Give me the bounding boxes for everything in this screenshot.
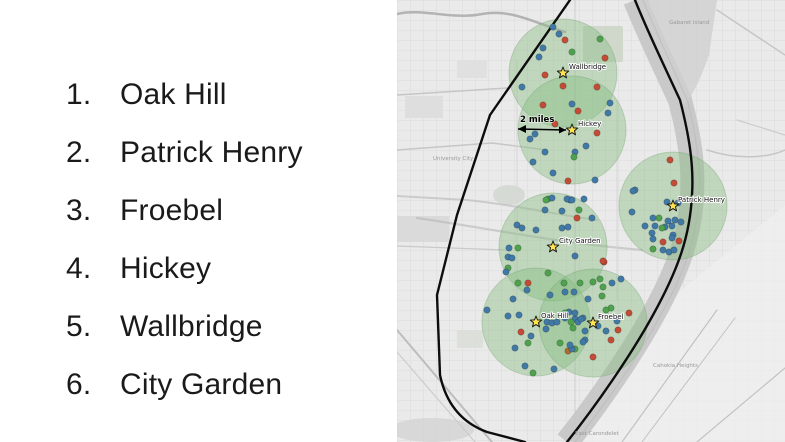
school-list: 1.Oak Hill2.Patrick Henry3.Froebel4.Hick… [66, 78, 303, 426]
data-point-dot [540, 45, 546, 51]
data-point-dot [532, 131, 538, 137]
school-name: Froebel [120, 194, 223, 228]
data-point-dot [594, 130, 600, 136]
data-point-dot [576, 207, 582, 213]
data-point-dot [607, 100, 613, 106]
data-point-dot [650, 215, 656, 221]
data-point-dot [557, 340, 563, 346]
data-point-dot [562, 289, 568, 295]
data-point-dot [594, 84, 600, 90]
data-point-dot [578, 316, 584, 322]
data-point-dot [660, 247, 666, 253]
school-list-item-1: 1.Oak Hill [66, 78, 303, 109]
data-point-dot [505, 313, 511, 319]
data-point-dot [570, 325, 576, 331]
data-point-dot [660, 239, 666, 245]
data-point-dot [650, 246, 656, 252]
data-point-dot [567, 342, 573, 348]
data-point-dot [530, 159, 536, 165]
data-point-dot [528, 333, 534, 339]
basemap-label-cahokia-heights: Cahokia Heights [653, 363, 698, 369]
map: WallbridgeHickeyPatrick HenryCity Garden… [397, 0, 785, 442]
data-point-dot [551, 366, 557, 372]
data-point-dot [556, 31, 562, 37]
data-point-dot [589, 215, 595, 221]
data-point-dot [503, 269, 509, 275]
school-list-item-6: 6.City Garden [66, 368, 303, 399]
data-point-dot [605, 110, 611, 116]
data-point-dot [669, 235, 675, 241]
list-number: 1. [66, 78, 120, 112]
school-list-item-2: 2.Patrick Henry [66, 136, 303, 167]
data-point-dot [550, 170, 556, 176]
data-point-dot [509, 255, 515, 261]
school-marker-label-wallbridge: Wallbridge [569, 63, 606, 71]
data-point-dot [519, 84, 525, 90]
data-point-dot [590, 354, 596, 360]
school-name: Oak Hill [120, 78, 227, 112]
data-point-dot [569, 101, 575, 107]
slide-canvas: 1.Oak Hill2.Patrick Henry3.Froebel4.Hick… [0, 0, 785, 442]
data-point-dot [585, 296, 591, 302]
data-point-dot [542, 72, 548, 78]
list-number: 4. [66, 252, 120, 286]
data-point-dot [659, 225, 665, 231]
data-point-dot [597, 276, 603, 282]
data-point-dot [671, 180, 677, 186]
data-point-dot [545, 270, 551, 276]
data-point-dot [533, 227, 539, 233]
data-point-dot [649, 230, 655, 236]
data-point-dot [569, 197, 575, 203]
data-point-dot [667, 157, 673, 163]
data-point-dot [543, 197, 549, 203]
list-number: 5. [66, 310, 120, 344]
data-point-dot [603, 328, 609, 334]
data-point-dot [602, 55, 608, 61]
data-point-dot [547, 292, 553, 298]
school-name: Patrick Henry [120, 136, 303, 170]
school-name: Hickey [120, 252, 211, 286]
data-point-dot [678, 219, 684, 225]
data-point-dot [608, 337, 614, 343]
data-point-dot [609, 280, 615, 286]
data-point-dot [642, 223, 648, 229]
data-point-dot [542, 207, 548, 213]
list-number: 3. [66, 194, 120, 228]
data-point-dot [672, 217, 678, 223]
basemap-label-gabaret-island: Gabaret Island [669, 20, 709, 26]
data-point-dot [618, 276, 624, 282]
data-point-dot [572, 253, 578, 259]
data-point-dot [559, 208, 565, 214]
data-point-dot [615, 327, 621, 333]
data-point-dot [600, 258, 606, 264]
data-point-dot [577, 280, 583, 286]
data-point-dot [650, 236, 656, 242]
data-point-dot [561, 280, 567, 286]
data-point-dot [540, 102, 546, 108]
data-point-dot [542, 149, 548, 155]
list-number: 6. [66, 368, 120, 402]
data-point-dot [626, 310, 632, 316]
data-point-dot [525, 280, 531, 286]
school-list-item-5: 5.Wallbridge [66, 310, 303, 341]
data-point-dot [525, 340, 531, 346]
data-point-dot [512, 345, 518, 351]
data-point-dot [629, 209, 635, 215]
data-point-dot [527, 136, 533, 142]
data-point-dot [671, 247, 677, 253]
scale-label: 2 miles [520, 115, 554, 125]
data-point-dot [516, 312, 522, 318]
data-point-dot [669, 223, 675, 229]
data-point-dot [600, 284, 606, 290]
data-point-dot [652, 223, 658, 229]
data-point-dot [569, 49, 575, 55]
school-marker-label-patrick-henry: Patrick Henry [678, 196, 725, 204]
data-point-dot [519, 225, 525, 231]
data-point-dot [572, 310, 578, 316]
data-point-dot [510, 296, 516, 302]
data-point-dot [592, 177, 598, 183]
data-point-dot [597, 36, 603, 42]
school-list-item-4: 4.Hickey [66, 252, 303, 283]
school-marker-label-oak-hill: Oak Hill [541, 312, 568, 320]
data-point-dot [656, 215, 662, 221]
basemap-label-university-city: University City [433, 156, 474, 162]
data-point-dot [583, 143, 589, 149]
school-marker-label-froebel: Froebel [598, 313, 624, 321]
data-point-dot [565, 224, 571, 230]
data-point-dot [630, 188, 636, 194]
data-point-dot [582, 328, 588, 334]
data-point-dot [575, 108, 581, 114]
data-point-dot [515, 280, 521, 286]
data-point-dot [590, 279, 596, 285]
data-point-dot [559, 225, 565, 231]
data-point-dot [549, 195, 555, 201]
school-name: Wallbridge [120, 310, 263, 344]
data-point-dot [536, 54, 542, 60]
data-point-dot [522, 363, 528, 369]
data-point-dot [565, 178, 571, 184]
data-point-dot [676, 238, 682, 244]
data-point-dot [568, 319, 574, 325]
school-marker-label-hickey: Hickey [578, 120, 601, 128]
data-point-dot [599, 293, 605, 299]
data-point-dot [562, 37, 568, 43]
data-point-dot [580, 339, 586, 345]
data-point-dot [560, 83, 566, 89]
data-point-dot [518, 329, 524, 335]
data-point-dot [581, 196, 587, 202]
data-point-dot [574, 215, 580, 221]
basemap-label-east-carondelet: East Carondelet [575, 431, 620, 437]
school-name: City Garden [120, 368, 282, 402]
data-point-dot [571, 154, 577, 160]
school-marker-label-city-garden: City Garden [559, 237, 601, 245]
data-point-dot [543, 326, 549, 332]
data-point-dot [484, 307, 490, 313]
data-point-dot [550, 24, 556, 30]
data-point-dot [506, 245, 512, 251]
data-point-dot [524, 287, 530, 293]
school-list-item-3: 3.Froebel [66, 194, 303, 225]
city-map: WallbridgeHickeyPatrick HenryCity Garden… [397, 0, 785, 442]
data-point-dot [530, 370, 536, 376]
data-point-dot [571, 289, 577, 295]
list-number: 2. [66, 136, 120, 170]
data-point-dot [515, 245, 521, 251]
